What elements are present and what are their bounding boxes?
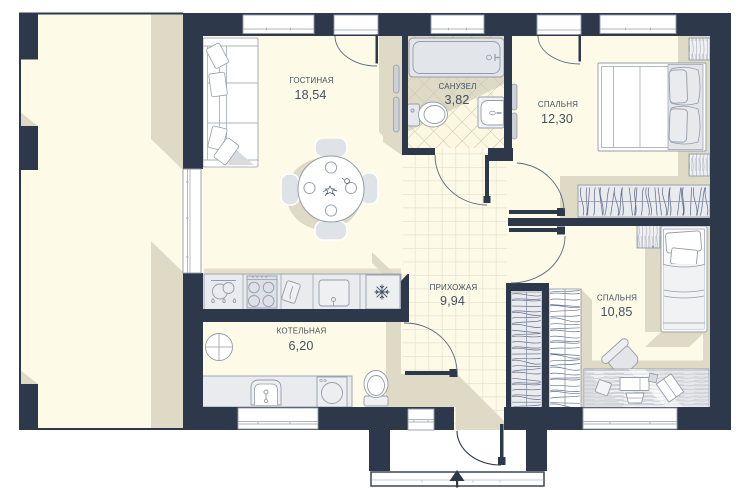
svg-text:9,94: 9,94 xyxy=(440,294,465,308)
svg-text:СПАЛЬНЯ: СПАЛЬНЯ xyxy=(597,294,637,303)
svg-text:10,85: 10,85 xyxy=(600,305,632,319)
svg-text:САНУЗЕЛ: САНУЗЕЛ xyxy=(438,82,476,91)
svg-text:3,82: 3,82 xyxy=(445,93,470,107)
svg-text:КОТЕЛЬНАЯ: КОТЕЛЬНАЯ xyxy=(277,327,327,336)
svg-text:12,30: 12,30 xyxy=(541,112,573,126)
svg-text:ГОСТИНАЯ: ГОСТИНАЯ xyxy=(289,76,333,85)
svg-text:18,54: 18,54 xyxy=(294,88,326,102)
svg-text:ПРИХОЖАЯ: ПРИХОЖАЯ xyxy=(430,283,478,292)
svg-text:СПАЛЬНЯ: СПАЛЬНЯ xyxy=(538,100,578,109)
svg-text:6,20: 6,20 xyxy=(289,339,314,353)
